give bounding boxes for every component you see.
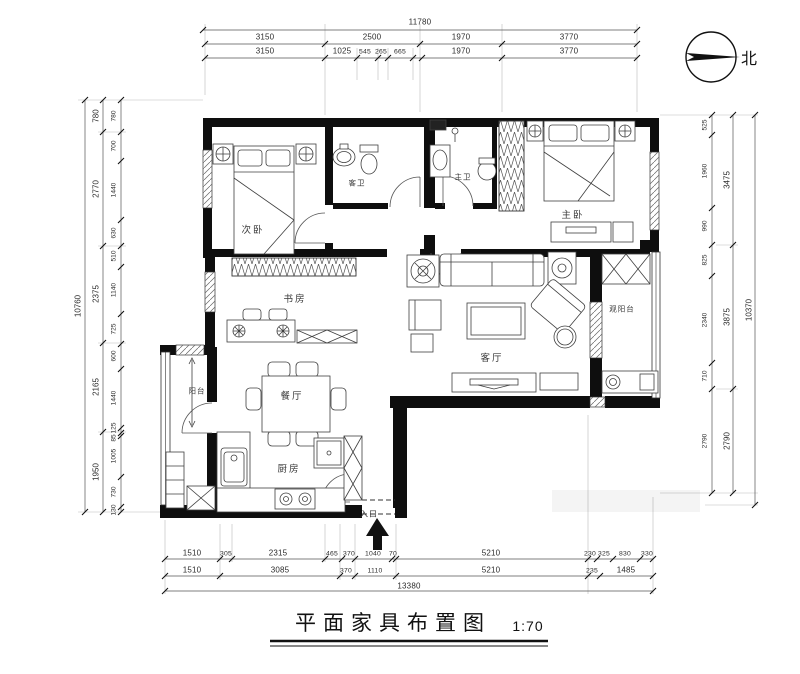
speaker-right [548, 252, 576, 284]
room-label-master-bedroom: 主卧 [561, 207, 584, 221]
dim: 3085 [271, 566, 290, 575]
dim: 710 [702, 370, 709, 381]
dim: 3150 [256, 47, 275, 56]
dim: 2375 [92, 285, 101, 303]
speaker-left [407, 255, 439, 287]
dim: 1110 [368, 568, 383, 575]
washer-cabinet [602, 371, 658, 393]
dim: 730 [111, 486, 118, 497]
dim: 825 [702, 254, 709, 265]
room-label-secondary-bedroom: 次卧 [241, 222, 264, 236]
dim: 1510 [183, 549, 202, 558]
dim: 1960 [702, 164, 709, 179]
dining-set [246, 362, 346, 446]
dim: 600 [111, 350, 118, 361]
armchair-left [409, 300, 441, 352]
floor-plan-canvas: 次卧 客卫 主卫 主卧 书房 客厅 观阳台 餐厅 阳台 厨房 入口 11780 … [0, 0, 800, 674]
dim: 130 [111, 504, 118, 515]
entrance-arrow [366, 518, 389, 550]
kitchen-sink [221, 448, 247, 486]
dim-top-total: 11780 [409, 18, 432, 27]
dim: 2340 [702, 313, 709, 328]
bookshelf [232, 258, 356, 276]
dim: 780 [111, 110, 118, 121]
room-label-master-bath: 主卫 [455, 172, 472, 183]
round-side-table [554, 326, 576, 348]
dim: 780 [92, 109, 101, 122]
dim: 665 [394, 49, 406, 56]
dim: 990 [702, 220, 709, 231]
dim: 265 [375, 49, 387, 56]
dim: 1485 [617, 566, 636, 575]
dim: 2315 [269, 549, 288, 558]
dim: 1970 [452, 47, 471, 56]
room-label-guest-bath: 客卫 [349, 178, 366, 189]
dim: 2770 [92, 180, 101, 198]
sofa [440, 254, 544, 286]
dim: 1970 [452, 33, 471, 42]
dim: 1025 [333, 47, 352, 56]
room-label-kitchen: 厨房 [277, 461, 300, 475]
dim: 235 [586, 568, 598, 575]
north-label: 北 [741, 45, 757, 69]
dim: 3475 [723, 171, 732, 189]
room-label-dining: 餐厅 [280, 388, 303, 402]
dim: 830 [619, 551, 631, 558]
dim: 370 [343, 551, 355, 558]
tv-cabinet-living [452, 373, 578, 392]
dim: 1440 [111, 183, 118, 198]
room-label-view-balcony: 观阳台 [609, 304, 635, 315]
room-label-study: 书房 [283, 291, 306, 305]
dim: 630 [111, 227, 118, 238]
kitchen-stove [275, 489, 315, 509]
room-label-balcony: 阳台 [189, 386, 206, 397]
tv-stand-master [551, 222, 633, 242]
dim: 545 [359, 49, 371, 56]
dim: 465 [326, 551, 338, 558]
dim: 2790 [723, 432, 732, 450]
dim: 125 [111, 422, 118, 433]
dim: 1005 [111, 449, 118, 464]
dim: 5210 [482, 549, 501, 558]
dim: 3150 [256, 33, 275, 42]
drawing-scale: 1:70 [512, 618, 543, 634]
dim: 1440 [111, 391, 118, 406]
room-label-living-room: 客厅 [480, 350, 503, 364]
armchair-rotated [530, 278, 587, 334]
dim: 85 [111, 434, 118, 441]
wardrobe-master [499, 121, 524, 211]
dim: 330 [641, 551, 653, 558]
dim: 525 [702, 119, 709, 130]
dim: 2790 [702, 434, 709, 449]
bed-secondary [234, 146, 294, 254]
coffee-table [467, 303, 525, 339]
floor-plan-drawing [0, 0, 800, 674]
dim: 2165 [92, 378, 101, 396]
title-underline [270, 641, 548, 646]
guest-bath-fixtures [333, 144, 378, 174]
balcony-cabinet-top [602, 254, 650, 284]
dim: 725 [111, 323, 118, 334]
dim-right-total: 10370 [745, 299, 754, 321]
dim: 5210 [482, 566, 501, 575]
kitchen-fridge [314, 438, 344, 468]
watermark [552, 490, 700, 512]
dim: 230 [584, 551, 596, 558]
north-compass [686, 32, 740, 82]
dim-left-total: 10760 [74, 295, 83, 317]
dim: 1140 [111, 283, 118, 297]
dim: 1950 [92, 463, 101, 481]
drawing-title: 平面家具布置图 [295, 607, 491, 637]
dim-bottom-total: 13380 [397, 582, 420, 591]
dim: 3875 [723, 308, 732, 326]
dim: 510 [111, 250, 118, 261]
dim: 3770 [560, 33, 579, 42]
study-cabinet [297, 330, 357, 343]
dim: 370 [340, 568, 352, 575]
dim: 1510 [183, 566, 202, 575]
study-desk [227, 309, 295, 342]
room-label-entrance: 入口 [360, 509, 378, 520]
dim: 1040 [365, 551, 381, 558]
dim: 70 [389, 551, 397, 558]
dim: 325 [598, 551, 610, 558]
kitchen-tall-cabinet [344, 436, 362, 500]
dim: 3770 [560, 47, 579, 56]
bed-master [544, 121, 614, 201]
dim: 305 [220, 551, 232, 558]
dim: 2500 [363, 33, 382, 42]
dim: 700 [111, 140, 118, 151]
